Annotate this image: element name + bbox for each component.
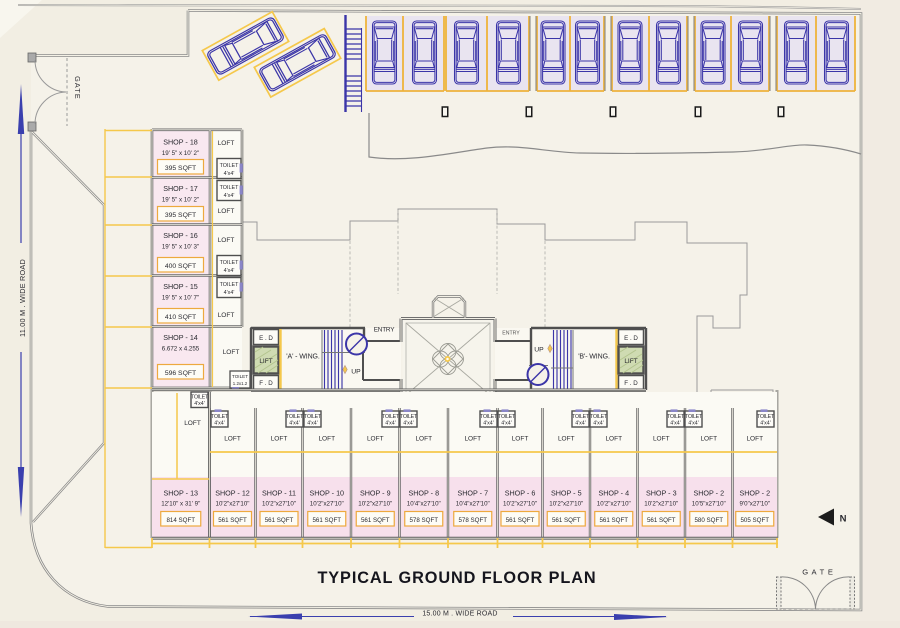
- svg-text:UP: UP: [534, 347, 544, 354]
- svg-text:SHOP - 3: SHOP - 3: [646, 489, 677, 498]
- svg-text:LOFT: LOFT: [318, 436, 335, 443]
- svg-text:12'10" x 31' 9": 12'10" x 31' 9": [161, 501, 200, 508]
- svg-text:4'x4': 4'x4': [224, 193, 235, 199]
- svg-text:580 SQFT: 580 SQFT: [694, 517, 723, 524]
- svg-text:400 SQFT: 400 SQFT: [165, 263, 196, 270]
- svg-text:SHOP - 16: SHOP - 16: [163, 231, 198, 240]
- svg-text:F . D: F . D: [624, 380, 638, 387]
- svg-text:SHOP - 15: SHOP - 15: [163, 282, 198, 291]
- svg-text:SHOP - 2: SHOP - 2: [693, 489, 724, 498]
- svg-text:11.00 M . WIDE ROAD: 11.00 M . WIDE ROAD: [18, 259, 27, 337]
- svg-text:395 SQFT: 395 SQFT: [165, 165, 196, 172]
- svg-text:19' 5" x 10' 7": 19' 5" x 10' 7": [162, 295, 199, 302]
- svg-text:814 SQFT: 814 SQFT: [166, 517, 195, 524]
- svg-text:4'x4': 4'x4': [224, 290, 235, 296]
- svg-text:UP: UP: [351, 369, 361, 376]
- svg-text:E . D: E . D: [624, 335, 638, 342]
- svg-text:TOILET: TOILET: [220, 282, 239, 288]
- svg-text:4'x4': 4'x4': [224, 268, 235, 274]
- svg-text:578 SQFT: 578 SQFT: [458, 517, 487, 524]
- svg-text:LOFT: LOFT: [223, 349, 240, 356]
- svg-text:10'2"x27'10": 10'2"x27'10": [644, 501, 678, 508]
- svg-text:LIFT: LIFT: [624, 358, 637, 365]
- svg-text:1.2x1.2: 1.2x1.2: [233, 381, 248, 386]
- svg-text:10'2"x27'10": 10'2"x27'10": [310, 501, 344, 508]
- svg-text:G A T E: G A T E: [802, 568, 834, 577]
- svg-text:19' 5" x 10' 2": 19' 5" x 10' 2": [162, 150, 199, 157]
- svg-text:TOILET: TOILET: [220, 185, 239, 191]
- svg-text:LOFT: LOFT: [218, 237, 235, 244]
- svg-text:SHOP - 4: SHOP - 4: [598, 489, 629, 498]
- svg-text:ENTRY: ENTRY: [374, 327, 395, 334]
- svg-text:GATE: GATE: [73, 76, 82, 100]
- svg-text:SHOP - 9: SHOP - 9: [360, 489, 391, 498]
- svg-text:10'2"x27'10": 10'2"x27'10": [262, 501, 296, 508]
- svg-text:LOFT: LOFT: [184, 420, 201, 427]
- svg-text:561 SQFT: 561 SQFT: [312, 517, 341, 524]
- svg-text:4'x4': 4'x4': [194, 401, 205, 407]
- svg-text:LOFT: LOFT: [558, 436, 575, 443]
- svg-text:LOFT: LOFT: [746, 436, 763, 443]
- svg-text:19' 5" x 10' 3": 19' 5" x 10' 3": [162, 244, 199, 251]
- svg-text:LOFT: LOFT: [700, 436, 717, 443]
- svg-text:LIFT: LIFT: [259, 358, 272, 365]
- svg-text:LOFT: LOFT: [653, 436, 670, 443]
- svg-text:TOILET: TOILET: [220, 260, 239, 266]
- svg-text:E . D: E . D: [259, 335, 273, 342]
- svg-text:ENTRY: ENTRY: [502, 331, 520, 337]
- svg-text:SHOP - 8: SHOP - 8: [408, 489, 439, 498]
- svg-text:561 SQFT: 561 SQFT: [599, 517, 628, 524]
- svg-text:10'2"x27'10": 10'2"x27'10": [216, 501, 250, 508]
- svg-text:LOFT: LOFT: [218, 312, 235, 319]
- svg-text:SHOP - 10: SHOP - 10: [309, 489, 344, 498]
- svg-text:395 SQFT: 395 SQFT: [165, 212, 196, 219]
- svg-text:TOILET: TOILET: [232, 374, 248, 379]
- svg-text:10'4"x27'10": 10'4"x27'10": [407, 501, 441, 508]
- svg-text:LOFT: LOFT: [367, 436, 384, 443]
- svg-text:TOILET: TOILET: [191, 395, 209, 401]
- svg-text:6.672 x 4.255: 6.672 x 4.255: [162, 346, 200, 353]
- svg-text:LOFT: LOFT: [464, 436, 481, 443]
- svg-text:410 SQFT: 410 SQFT: [165, 314, 196, 321]
- svg-text:SHOP - 7: SHOP - 7: [457, 489, 488, 498]
- svg-text:561 SQFT: 561 SQFT: [552, 517, 581, 524]
- svg-text:505 SQFT: 505 SQFT: [740, 517, 769, 524]
- svg-text:SHOP - 13: SHOP - 13: [163, 489, 198, 498]
- svg-text:LOFT: LOFT: [218, 140, 235, 147]
- svg-text:SHOP - 5: SHOP - 5: [551, 489, 582, 498]
- svg-text:10'4"x27'10": 10'4"x27'10": [456, 501, 490, 508]
- svg-text:LOFT: LOFT: [605, 436, 622, 443]
- svg-text:SHOP - 2: SHOP - 2: [739, 489, 770, 498]
- svg-text:561 SQFT: 561 SQFT: [361, 517, 390, 524]
- svg-text:F . D: F . D: [259, 380, 273, 387]
- svg-text:4'x4': 4'x4': [224, 171, 235, 177]
- svg-text:19' 5" x 10' 2": 19' 5" x 10' 2": [162, 197, 199, 204]
- svg-text:10'5"x27'10": 10'5"x27'10": [692, 501, 726, 508]
- svg-text:SHOP - 18: SHOP - 18: [163, 138, 198, 147]
- svg-text:561 SQFT: 561 SQFT: [218, 517, 247, 524]
- svg-text:9'0"x27'10": 9'0"x27'10": [740, 501, 771, 508]
- svg-text:10'2"x27'10": 10'2"x27'10": [503, 501, 537, 508]
- svg-text:SHOP - 14: SHOP - 14: [163, 333, 198, 342]
- svg-text:SHOP - 11: SHOP - 11: [262, 489, 296, 498]
- svg-text:LOFT: LOFT: [271, 436, 288, 443]
- svg-text:SHOP - 17: SHOP - 17: [163, 184, 198, 193]
- svg-text:561 SQFT: 561 SQFT: [506, 517, 535, 524]
- svg-text:TOILET: TOILET: [220, 163, 239, 169]
- svg-text:N: N: [840, 514, 847, 525]
- svg-text:15.00 M . WIDE ROAD: 15.00 M . WIDE ROAD: [422, 611, 497, 618]
- svg-text:'A' - WING.: 'A' - WING.: [286, 354, 320, 361]
- svg-text:10'2"x27'10": 10'2"x27'10": [358, 501, 392, 508]
- svg-text:596 SQFT: 596 SQFT: [165, 370, 196, 377]
- svg-text:578 SQFT: 578 SQFT: [409, 517, 438, 524]
- svg-text:LOFT: LOFT: [415, 436, 432, 443]
- svg-text:10'2"x27'10": 10'2"x27'10": [549, 501, 583, 508]
- svg-text:561 SQFT: 561 SQFT: [647, 517, 676, 524]
- svg-text:'B'- WING.: 'B'- WING.: [578, 354, 610, 361]
- svg-text:TYPICAL GROUND FLOOR PLAN: TYPICAL GROUND FLOOR PLAN: [317, 569, 596, 587]
- svg-text:10'2"x27'10": 10'2"x27'10": [597, 501, 631, 508]
- svg-text:SHOP - 6: SHOP - 6: [505, 489, 536, 498]
- svg-text:LOFT: LOFT: [224, 436, 241, 443]
- svg-text:LOFT: LOFT: [512, 436, 529, 443]
- svg-text:561 SQFT: 561 SQFT: [265, 517, 294, 524]
- svg-text:SHOP - 12: SHOP - 12: [215, 489, 250, 498]
- svg-text:LOFT: LOFT: [218, 208, 235, 215]
